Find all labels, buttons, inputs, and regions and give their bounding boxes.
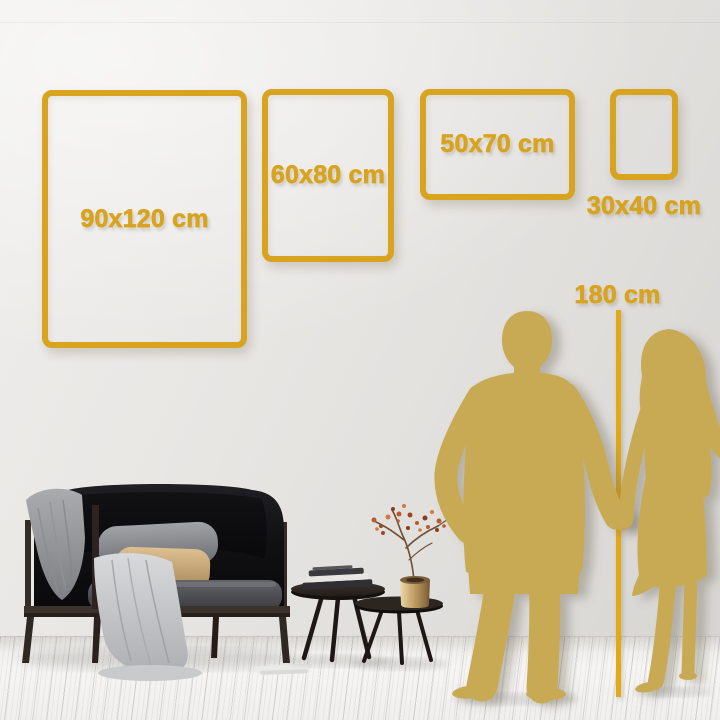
height-ruler-line xyxy=(616,310,621,697)
height-reference-label: 180 cm xyxy=(555,281,680,310)
size-label-60x80: 60x80 cm xyxy=(271,161,385,190)
size-frame-50x70: 50x70 cm xyxy=(420,89,575,200)
size-label-30x40: 30x40 cm xyxy=(569,192,719,221)
size-frame-30x40 xyxy=(610,89,678,180)
size-label-50x70: 50x70 cm xyxy=(440,130,554,159)
poster-size-guide-visual: 90x120 cm 60x80 cm 50x70 cm 30x40 cm 180… xyxy=(0,0,720,720)
size-frame-90x120: 90x120 cm xyxy=(42,90,247,348)
size-label-90x120: 90x120 cm xyxy=(80,205,208,234)
size-frame-60x80: 60x80 cm xyxy=(262,89,394,262)
wood-floor xyxy=(0,636,720,720)
